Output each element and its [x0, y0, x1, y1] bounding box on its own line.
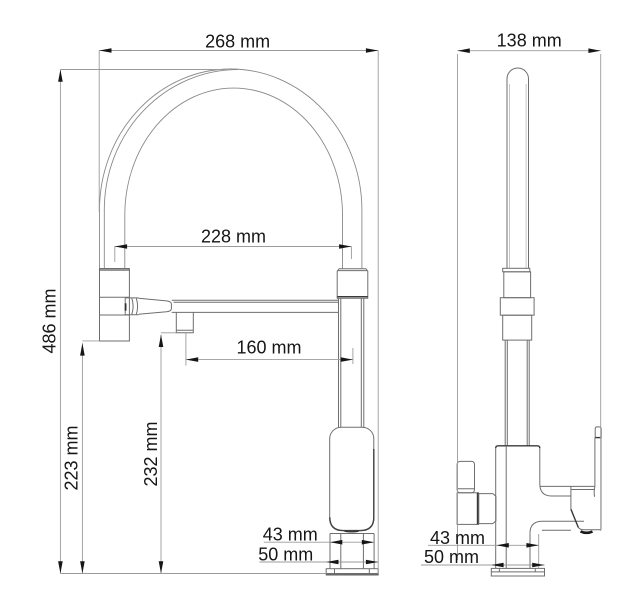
svg-text:50 mm: 50 mm [258, 545, 313, 565]
svg-text:228 mm: 228 mm [201, 227, 266, 247]
svg-text:50 mm: 50 mm [424, 547, 479, 567]
svg-text:223 mm: 223 mm [62, 425, 82, 490]
svg-text:160 mm: 160 mm [236, 337, 301, 357]
svg-text:232 mm: 232 mm [141, 421, 161, 486]
svg-text:268 mm: 268 mm [205, 32, 270, 52]
svg-text:43 mm: 43 mm [430, 528, 485, 548]
svg-text:486 mm: 486 mm [39, 288, 59, 353]
svg-text:138 mm: 138 mm [497, 31, 562, 51]
svg-text:43 mm: 43 mm [263, 525, 318, 545]
